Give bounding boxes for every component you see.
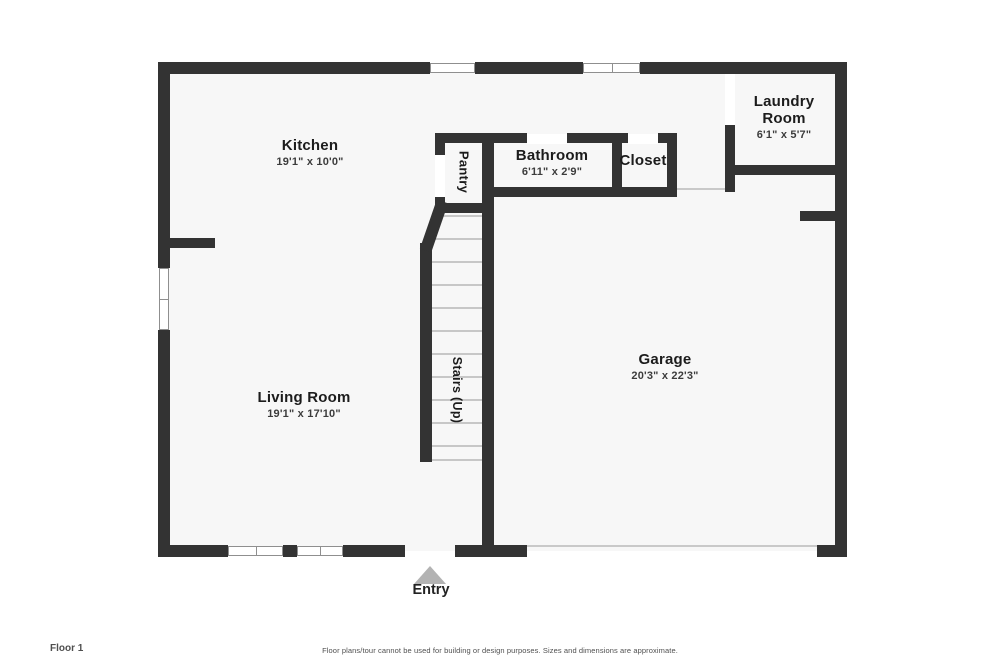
window: [228, 546, 283, 556]
wall-segment: [455, 545, 527, 557]
room-label-kitchen: Kitchen 19'1" x 10'0": [230, 137, 390, 168]
room-name: Closet: [593, 152, 693, 169]
room-name: Living Room: [224, 389, 384, 406]
room-label-closet: Closet: [593, 152, 693, 169]
wall-segment: [158, 238, 215, 248]
wall-segment: [475, 62, 583, 74]
room-name: Garage: [585, 351, 745, 368]
wall-segment: [835, 62, 847, 557]
garage-door-line: [527, 545, 817, 547]
room-label-living-room: Living Room 19'1" x 17'10": [224, 389, 384, 420]
door-opening: [628, 134, 658, 144]
wall-segment: [158, 545, 228, 557]
disclaimer-text: Floor plans/tour cannot be used for buil…: [0, 646, 1000, 655]
room-label-laundry: Laundry Room 6'1" x 5'7": [739, 93, 829, 141]
room-label-stairs: Stairs (Up): [450, 357, 464, 424]
floor-plan-page: Kitchen 19'1" x 10'0" Pantry Bathroom 6'…: [0, 0, 1000, 667]
wall-segment: [343, 545, 405, 557]
room-name: Kitchen: [230, 137, 390, 154]
stair-tread: [432, 307, 482, 309]
wall-segment: [725, 165, 835, 175]
hallway-opening-line: [677, 188, 725, 190]
stair-tread: [432, 445, 482, 447]
wall-segment: [800, 211, 835, 221]
door-opening: [725, 74, 735, 125]
wall-segment: [435, 133, 445, 155]
wall-segment: [158, 62, 430, 74]
window: [583, 63, 640, 73]
entry-label: Entry: [381, 582, 481, 598]
window: [430, 63, 475, 73]
room-dimensions: 6'1" x 5'7": [739, 129, 829, 141]
door-opening: [435, 155, 445, 197]
window: [297, 546, 343, 556]
wall-segment: [283, 545, 297, 557]
room-dimensions: 19'1" x 10'0": [230, 156, 390, 168]
room-dimensions: 19'1" x 17'10": [224, 408, 384, 420]
wall-segment: [420, 243, 432, 462]
room-dimensions: 20'3" x 22'3": [585, 370, 745, 382]
stair-tread: [432, 330, 482, 332]
stair-tread: [432, 261, 482, 263]
wall-segment: [158, 330, 170, 557]
wall-segment: [725, 125, 735, 192]
door-opening: [527, 134, 567, 144]
room-label-pantry: Pantry: [457, 151, 472, 193]
stair-tread: [432, 459, 482, 461]
stair-tread: [432, 238, 482, 240]
room-name: Laundry Room: [739, 93, 829, 127]
window: [159, 268, 169, 330]
wall-segment: [817, 545, 847, 557]
wall-segment: [435, 133, 527, 143]
stair-tread: [432, 353, 482, 355]
wall-segment: [482, 187, 677, 197]
wall-segment: [640, 62, 847, 74]
room-label-garage: Garage 20'3" x 22'3": [585, 351, 745, 382]
stair-tread: [432, 284, 482, 286]
